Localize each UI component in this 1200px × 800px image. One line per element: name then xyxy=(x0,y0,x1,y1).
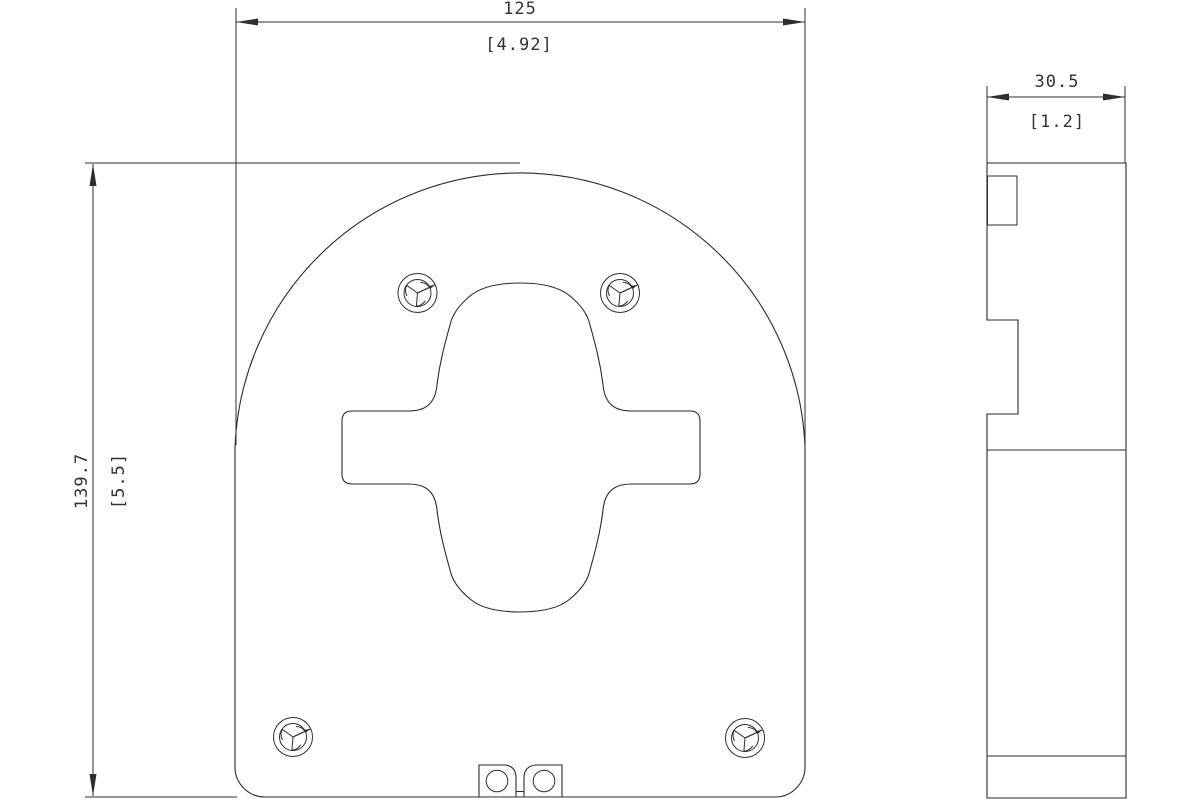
bottom-tab xyxy=(479,765,562,797)
arrowhead-left xyxy=(236,19,258,26)
side-notch-boss xyxy=(988,176,1018,225)
arrowhead-bottom xyxy=(90,774,97,796)
arrowhead-top xyxy=(90,164,97,186)
tab-hole-left xyxy=(486,770,508,792)
screw-top-right xyxy=(601,274,640,313)
arrowhead-right xyxy=(1103,94,1125,101)
dim-width: 125 [4.92] xyxy=(236,0,805,445)
dim-height-secondary: [5.5] xyxy=(109,453,129,509)
screw-bottom-left xyxy=(274,718,313,757)
arrowhead-left xyxy=(987,94,1009,101)
dim-height: 139.7 [5.5] xyxy=(72,163,520,797)
dim-depth-primary: 30.5 xyxy=(1035,72,1080,92)
tab-hole-right xyxy=(533,770,555,792)
dim-height-primary: 139.7 xyxy=(72,453,92,509)
side-outline xyxy=(987,163,1126,798)
dim-depth-secondary: [1.2] xyxy=(1029,112,1085,132)
dim-width-secondary: [4.92] xyxy=(485,35,552,55)
dim-width-primary: 125 xyxy=(503,0,537,19)
side-view xyxy=(987,163,1126,798)
dim-depth: 30.5 [1.2] xyxy=(987,72,1125,163)
screw-bottom-right xyxy=(726,719,765,758)
arrowhead-right xyxy=(783,19,805,26)
center-cutout xyxy=(342,283,700,612)
screw-top-left xyxy=(398,274,437,313)
front-view xyxy=(235,173,805,797)
plate-outline xyxy=(235,173,805,797)
technical-drawing-canvas: 125 [4.92] 139.7 [5.5] 30.5 [1.2] xyxy=(0,0,1200,800)
drawing-sheet: 125 [4.92] 139.7 [5.5] 30.5 [1.2] xyxy=(0,0,1200,800)
